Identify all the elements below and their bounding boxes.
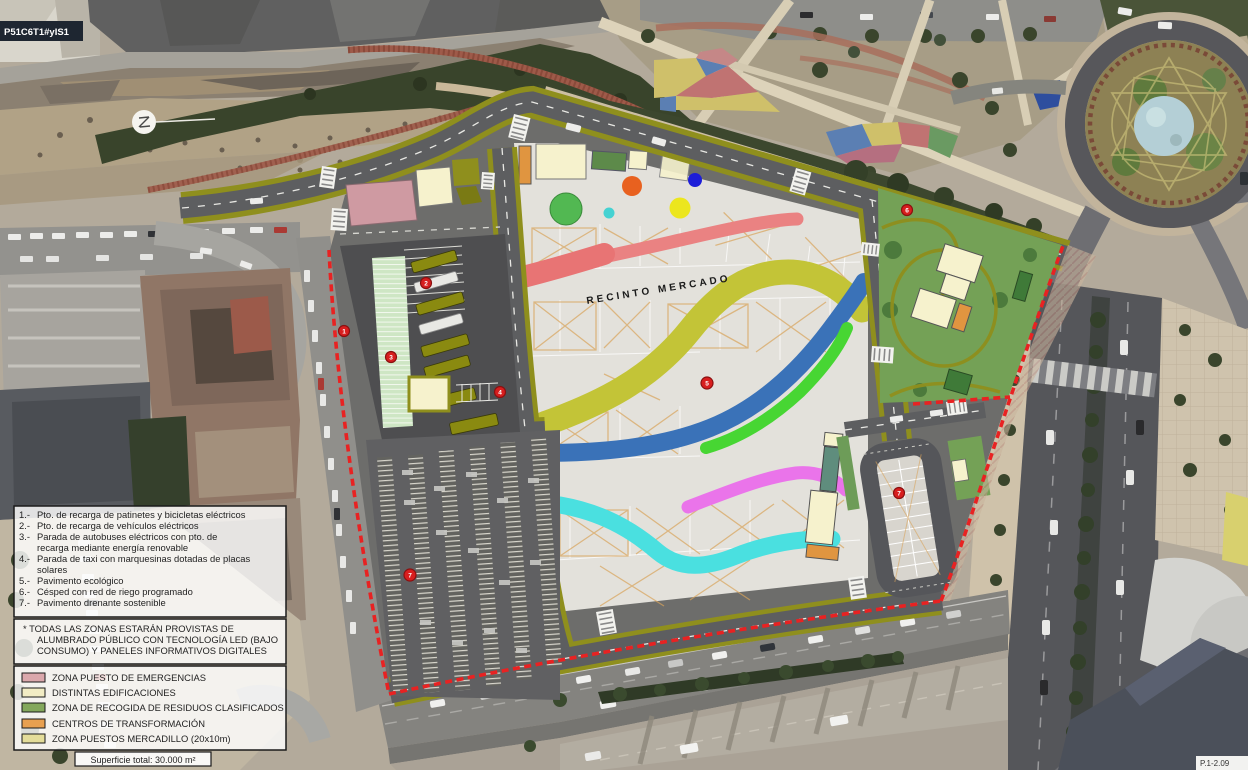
svg-text:6.-: 6.- bbox=[19, 586, 30, 597]
svg-text:CENTROS DE TRANSFORMACIÓN: CENTROS DE TRANSFORMACIÓN bbox=[52, 718, 205, 729]
svg-text:P.1-2.09: P.1-2.09 bbox=[1200, 759, 1230, 768]
svg-text:DISTINTAS EDIFICACIONES: DISTINTAS EDIFICACIONES bbox=[52, 687, 176, 698]
svg-text:Césped con red de riego progra: Césped con red de riego programado bbox=[37, 586, 193, 597]
svg-text:5: 5 bbox=[705, 381, 709, 388]
svg-text:7: 7 bbox=[897, 491, 901, 498]
svg-text:Pto. de recarga de vehículos e: Pto. de recarga de vehículos eléctricos bbox=[37, 520, 199, 531]
svg-text:6: 6 bbox=[905, 208, 909, 215]
svg-text:* TODAS LAS ZONAS ESTARÁN PROV: * TODAS LAS ZONAS ESTARÁN PROVISTAS DE bbox=[23, 623, 234, 634]
svg-text:2.-: 2.- bbox=[19, 520, 30, 531]
svg-text:Pavimento ecológico: Pavimento ecológico bbox=[37, 575, 124, 586]
svg-text:solares: solares bbox=[37, 564, 68, 575]
svg-text:ZONA PUESTOS MERCADILLO (20x10: ZONA PUESTOS MERCADILLO (20x10m) bbox=[52, 733, 231, 744]
svg-text:1.-: 1.- bbox=[19, 509, 30, 520]
svg-text:P51C6T1#yIS1: P51C6T1#yIS1 bbox=[4, 27, 70, 38]
svg-text:2: 2 bbox=[424, 281, 428, 288]
svg-text:3.-: 3.- bbox=[19, 531, 30, 542]
svg-text:ZONA DE RECOGIDA DE RESIDUOS C: ZONA DE RECOGIDA DE RESIDUOS CLASIFICADO… bbox=[52, 702, 284, 713]
svg-text:Parada de taxi con marquesinas: Parada de taxi con marquesinas dotadas d… bbox=[37, 553, 250, 564]
svg-text:Superficie total: 30.000 m²: Superficie total: 30.000 m² bbox=[90, 755, 195, 765]
svg-text:7.-: 7.- bbox=[19, 597, 30, 608]
svg-text:Pavimento drenante sostenible: Pavimento drenante sostenible bbox=[37, 597, 166, 608]
svg-text:7: 7 bbox=[408, 573, 412, 580]
svg-text:5.-: 5.- bbox=[19, 575, 30, 586]
svg-text:4: 4 bbox=[498, 390, 502, 397]
svg-text:3: 3 bbox=[389, 355, 393, 362]
svg-text:Parada de autobuses eléctricos: Parada de autobuses eléctricos con pto. … bbox=[37, 531, 217, 542]
svg-text:recarga mediante energía renov: recarga mediante energía renovable bbox=[37, 542, 188, 553]
svg-text:1: 1 bbox=[342, 329, 346, 336]
svg-text:CONSUMO) Y PANELES INFORMATI: CONSUMO) Y PANELES INFORMATIVOS DIGITALE… bbox=[37, 645, 267, 656]
svg-text:ALUMBRADO PÚBLICO CON TECNOLOG: ALUMBRADO PÚBLICO CON TECNOLOGÍA LED (BA… bbox=[37, 634, 278, 645]
svg-text:Pto. de recarga de patinetes y: Pto. de recarga de patinetes y bicicleta… bbox=[37, 509, 246, 520]
svg-text:4.-: 4.- bbox=[19, 553, 30, 564]
svg-text:ZONA PUESTO DE EMERGENCIAS: ZONA PUESTO DE EMERGENCIAS bbox=[52, 672, 206, 683]
